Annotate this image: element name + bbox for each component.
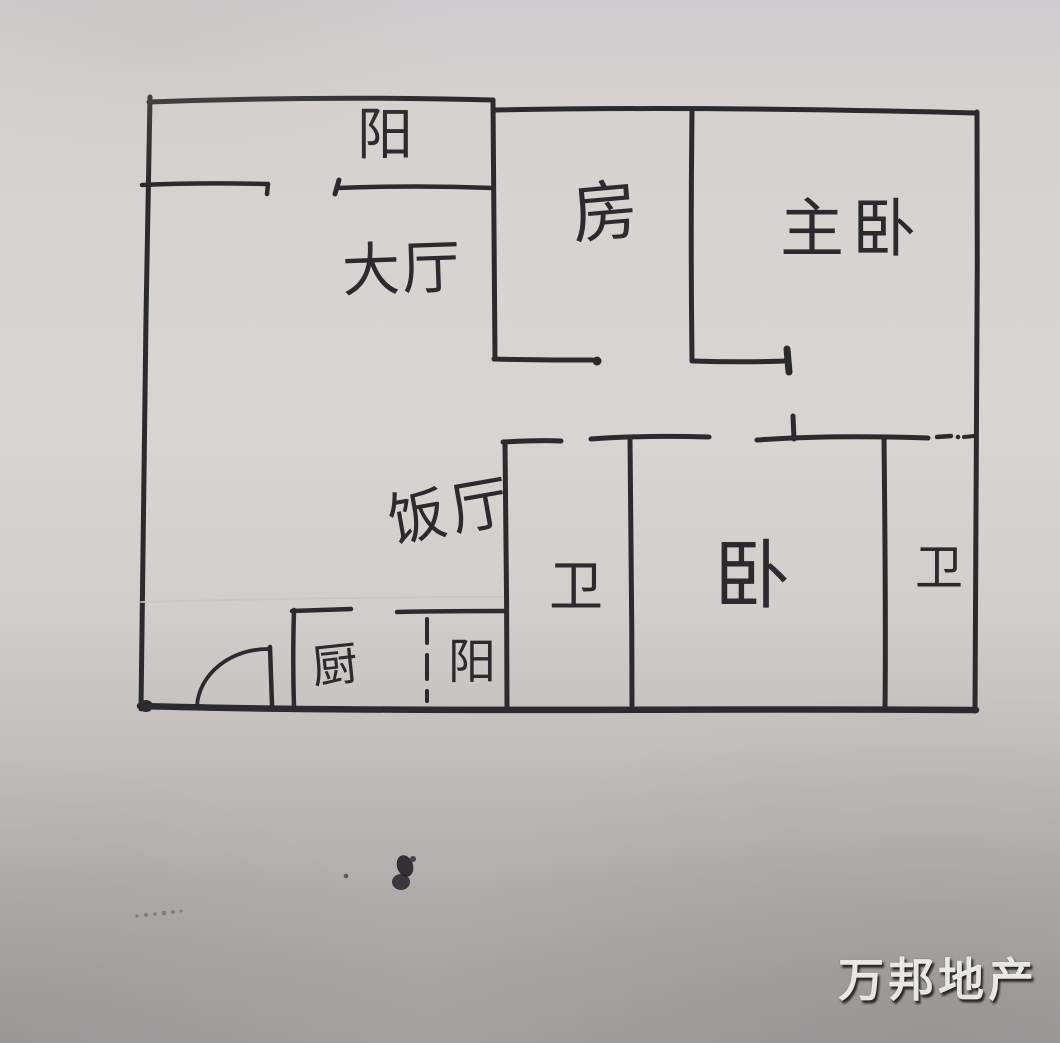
- room-label-balcony-bottom: 阳: [448, 638, 496, 686]
- master-bottom-wall: [692, 361, 786, 362]
- bedroom-door-tick: [793, 416, 794, 439]
- room-bottom-end-dot: [593, 357, 602, 366]
- wall-top-right: [493, 109, 977, 113]
- ink-blot-dot: [410, 856, 416, 862]
- watermark-text: 万邦地产: [838, 958, 1038, 1004]
- master-left-wall: [691, 112, 692, 360]
- balcony-divider-tick-left: [267, 184, 268, 194]
- walls-group: [139, 97, 977, 712]
- mid-wall-c: [757, 437, 928, 440]
- room-label-balcony-top: 阳: [357, 108, 413, 164]
- room-label-bedroom: 卧: [714, 538, 790, 614]
- master-bottom-endcap: [787, 349, 789, 372]
- room-label-room: 房: [569, 177, 641, 249]
- wall-top-left: [149, 98, 493, 102]
- wall-left: [141, 97, 150, 709]
- entrance-door-leaf: [270, 647, 272, 705]
- wall-bottom: [140, 706, 976, 710]
- tiny-dot-smudge: [344, 874, 349, 879]
- room-left-wall: [493, 100, 495, 359]
- room-bottom-wall: [494, 359, 592, 360]
- room-label-bath-right: 卫: [915, 544, 963, 592]
- mid-wall-dash2: [964, 436, 974, 437]
- balcony-divider-right: [337, 187, 493, 189]
- floor-plan-walls-svg: [0, 0, 1060, 1043]
- bath-right-wall-vertical: [884, 438, 885, 709]
- balcony-bottom-top-wall: [397, 611, 505, 612]
- wall-corner-blob: [139, 700, 153, 712]
- paper-crease: [141, 597, 502, 602]
- kitchen-top-wall: [292, 609, 351, 611]
- room-label-living-room: 大厅: [341, 238, 463, 300]
- ink-blot-smudge2: [392, 874, 410, 890]
- mid-wall-dot: [956, 435, 961, 440]
- mid-wall-dash1: [937, 436, 951, 437]
- floor-plan-photo: 阳 大厅 房 主卧 饭厅 卫 卧 卫 厨 阳 万邦地产: [0, 0, 1060, 1043]
- room-label-kitchen: 厨: [310, 640, 361, 691]
- faint-streak-smudge: [135, 910, 182, 918]
- entrance-door-arc: [197, 649, 269, 706]
- room-label-master-bedroom: 主卧: [780, 198, 924, 262]
- bath-left-wall-vertical: [630, 438, 632, 707]
- balcony-divider-left: [142, 183, 268, 185]
- mid-wall-b: [591, 436, 709, 439]
- smudges-group: [135, 853, 416, 918]
- room-label-bath-left: 卫: [549, 560, 603, 614]
- mid-wall-a: [503, 441, 561, 442]
- wall-right: [975, 112, 977, 711]
- kitchen-left-wall: [293, 610, 294, 707]
